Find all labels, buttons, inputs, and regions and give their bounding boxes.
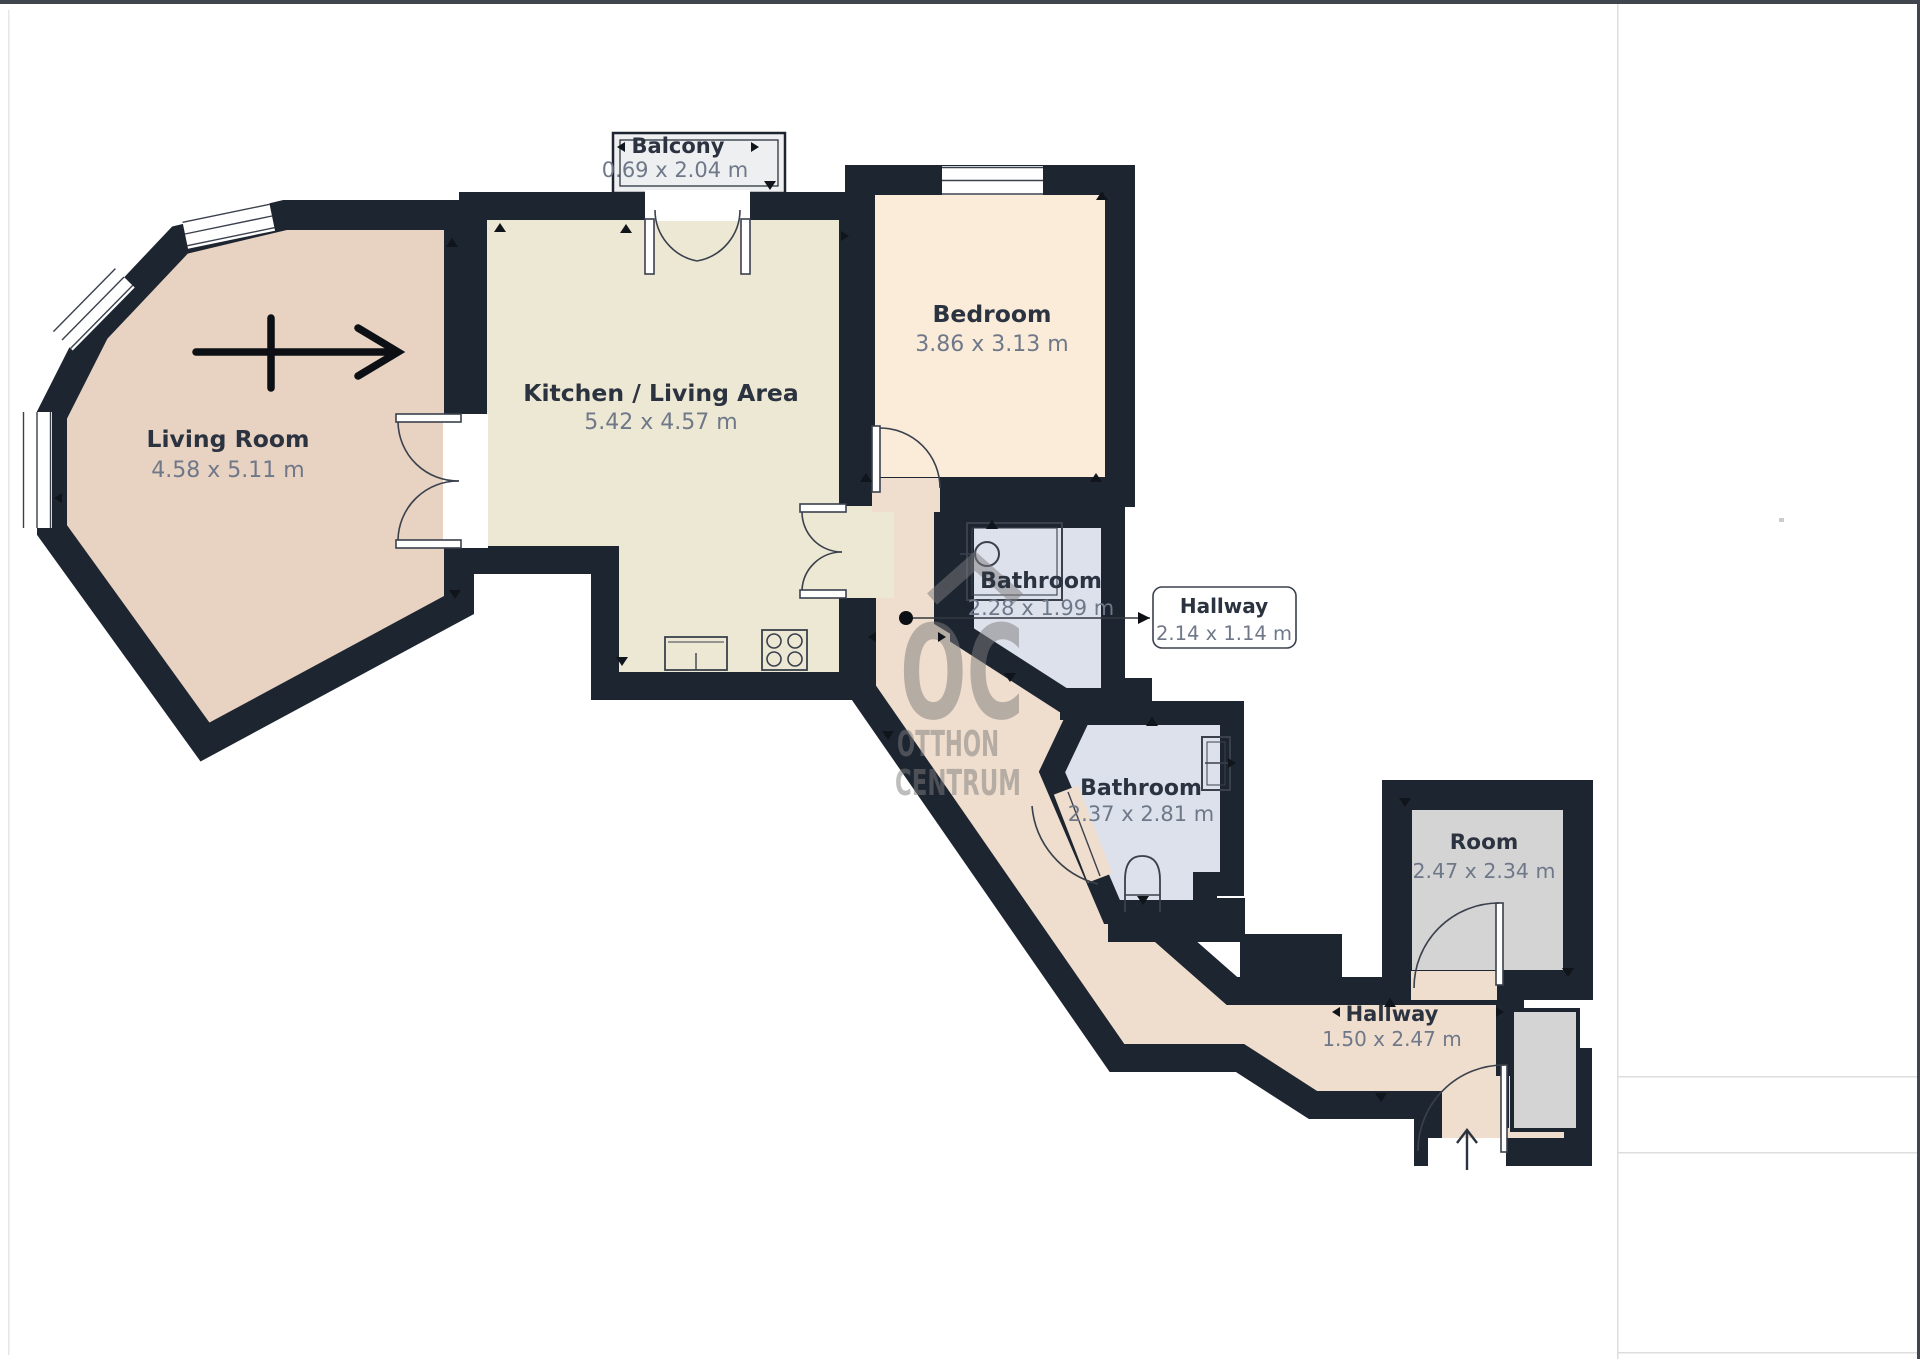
floorplan-canvas: OC OTTHON CENTRUM Hallway 2.14 x 1.14 m … xyxy=(0,0,1920,1359)
label-kitchen-dims: 5.42 x 4.57 m xyxy=(584,410,737,435)
door-leaf xyxy=(396,414,461,422)
closet-strip xyxy=(1512,1010,1578,1130)
watermark-line1: OTTHON xyxy=(897,724,999,765)
watermark-line2: CENTRUM xyxy=(895,763,1021,804)
door-leaf xyxy=(1501,1065,1507,1152)
panel-left-border xyxy=(1617,4,1619,1359)
label-bedroom-dims: 3.86 x 3.13 m xyxy=(915,332,1068,357)
door-gap-bedroom xyxy=(872,478,940,512)
panel-speck xyxy=(1779,518,1784,522)
door-gap-balcony xyxy=(645,190,750,221)
callout-anchor-dot xyxy=(899,611,913,625)
door-leaf xyxy=(800,504,846,512)
door-gap-kitchen-corridor xyxy=(836,506,894,598)
panel-divider xyxy=(1617,1352,1917,1354)
label-bathroom2-name: Bathroom xyxy=(1080,776,1202,801)
label-bedroom-name: Bedroom xyxy=(932,300,1051,328)
label-balcony-name: Balcony xyxy=(632,134,725,158)
label-living-dims: 4.58 x 5.11 m xyxy=(151,458,304,483)
door-leaf xyxy=(872,426,880,492)
panel-divider xyxy=(1617,1152,1917,1154)
label-bathroom2-dims: 2.37 x 2.81 m xyxy=(1068,802,1214,826)
label-hallway2-dims: 1.50 x 2.47 m xyxy=(1322,1027,1461,1051)
label-hallway1-name: Hallway xyxy=(1180,594,1268,618)
label-bathroom1-dims: 2.28 x 1.99 m xyxy=(968,596,1114,620)
room-small-room xyxy=(1397,795,1578,985)
label-hallway1-dims: 2.14 x 1.14 m xyxy=(1156,622,1292,645)
door-leaf xyxy=(396,540,461,548)
panel-divider xyxy=(1617,1076,1917,1078)
door-leaf xyxy=(1496,903,1503,985)
door-gap-room xyxy=(1411,971,1497,1000)
door-leaf xyxy=(741,219,750,274)
floorplan-page: OC OTTHON CENTRUM Hallway 2.14 x 1.14 m … xyxy=(0,0,1920,1359)
wall-patch xyxy=(1240,934,1342,992)
label-room-name: Room xyxy=(1450,830,1519,855)
label-living-name: Living Room xyxy=(146,425,309,453)
door-leaf xyxy=(800,590,846,598)
window-top-edge xyxy=(0,0,1920,4)
content-left-hairline xyxy=(8,10,10,1355)
label-room-dims: 2.47 x 2.34 m xyxy=(1413,859,1556,883)
door-leaf xyxy=(645,219,654,274)
label-balcony-dims: 0.69 x 2.04 m xyxy=(602,158,748,182)
label-kitchen-name: Kitchen / Living Area xyxy=(523,379,798,407)
label-bathroom1-name: Bathroom xyxy=(980,569,1102,594)
